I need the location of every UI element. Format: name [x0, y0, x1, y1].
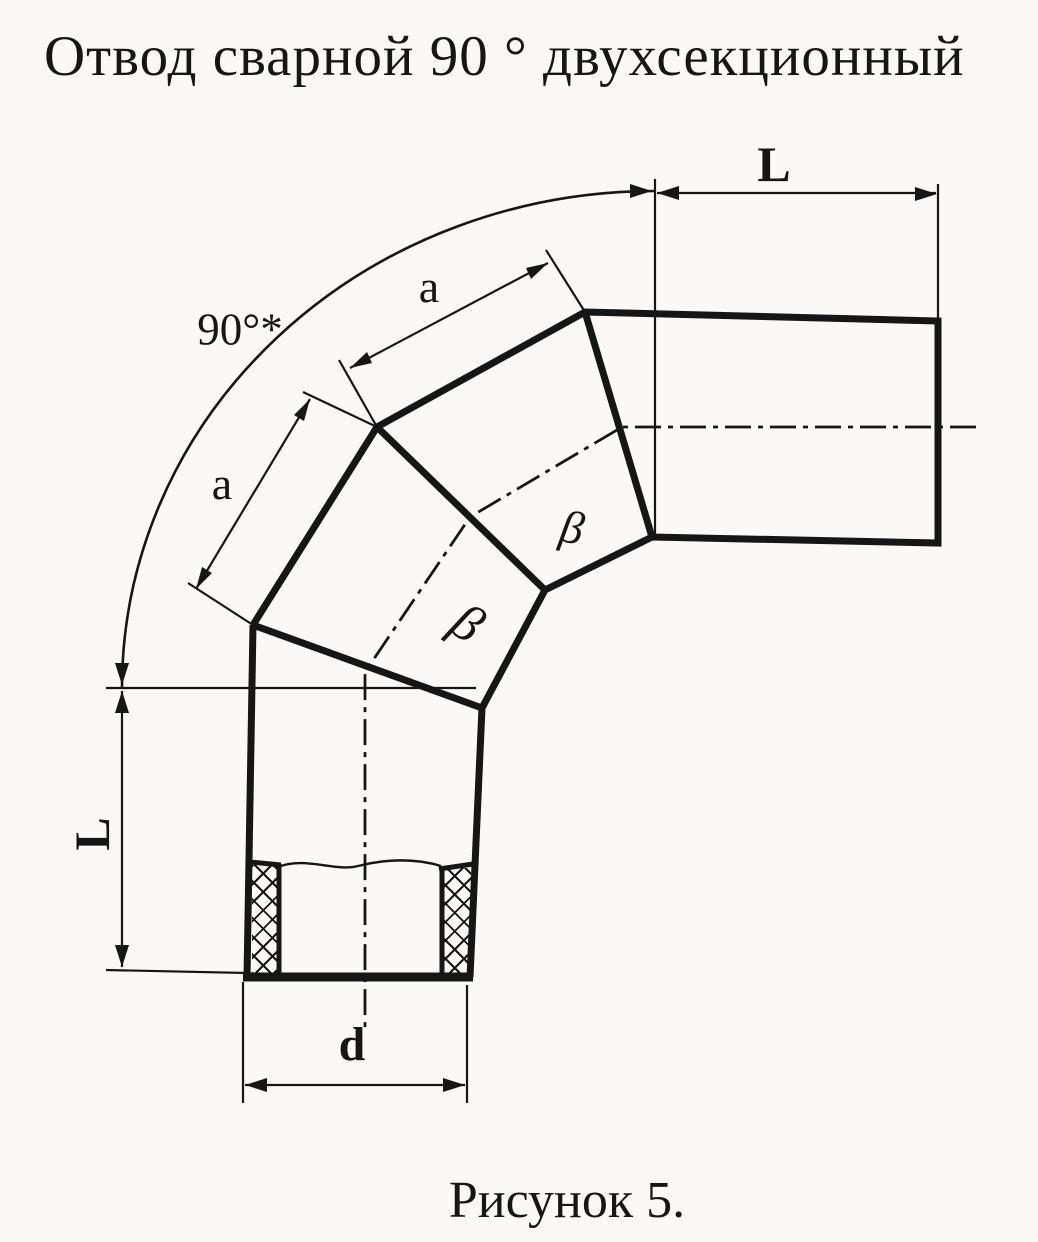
- arrow-a-lower-high: [294, 399, 310, 421]
- dim-label-L-left: L: [67, 817, 117, 850]
- arrow-a-upper-high: [526, 263, 548, 279]
- arrow-d-right: [443, 1078, 465, 1092]
- arrow-arc-top: [630, 184, 652, 198]
- arrow-L-left-down: [115, 945, 129, 967]
- figure-caption: Рисунок 5.: [449, 1175, 685, 1227]
- dim-label-d: d: [339, 1021, 366, 1069]
- arrow-L-left-up: [115, 691, 129, 713]
- bend-angle-label: 90°*: [197, 308, 283, 353]
- extension-line-bottom-end: [106, 970, 247, 973]
- dim-label-a-upper: a: [419, 264, 439, 310]
- weld-seam-3: [585, 312, 652, 537]
- arrow-a-lower-low: [196, 567, 212, 589]
- dim-label-L-top: L: [757, 139, 790, 189]
- elbow-drawing: [0, 0, 1038, 1242]
- dim-label-a-lower: a: [212, 461, 232, 507]
- arrow-d-left: [245, 1078, 267, 1092]
- arrow-L-top-left: [657, 186, 679, 200]
- extension-a-lower-1: [188, 583, 253, 625]
- arrow-L-top-right: [915, 187, 937, 201]
- extension-a-upper-2: [546, 250, 585, 312]
- arrow-a-upper-low: [350, 352, 372, 368]
- arrow-arc-bottom: [115, 663, 129, 685]
- wall-hatch-left: [252, 865, 278, 974]
- elbow-outer-contour: [253, 312, 938, 977]
- weld-seam-2: [377, 427, 545, 590]
- wall-hatch-right: [443, 868, 471, 976]
- break-line: [278, 860, 441, 867]
- figure-page: Отвод сварной 90 ° двухсекционный: [0, 0, 1038, 1242]
